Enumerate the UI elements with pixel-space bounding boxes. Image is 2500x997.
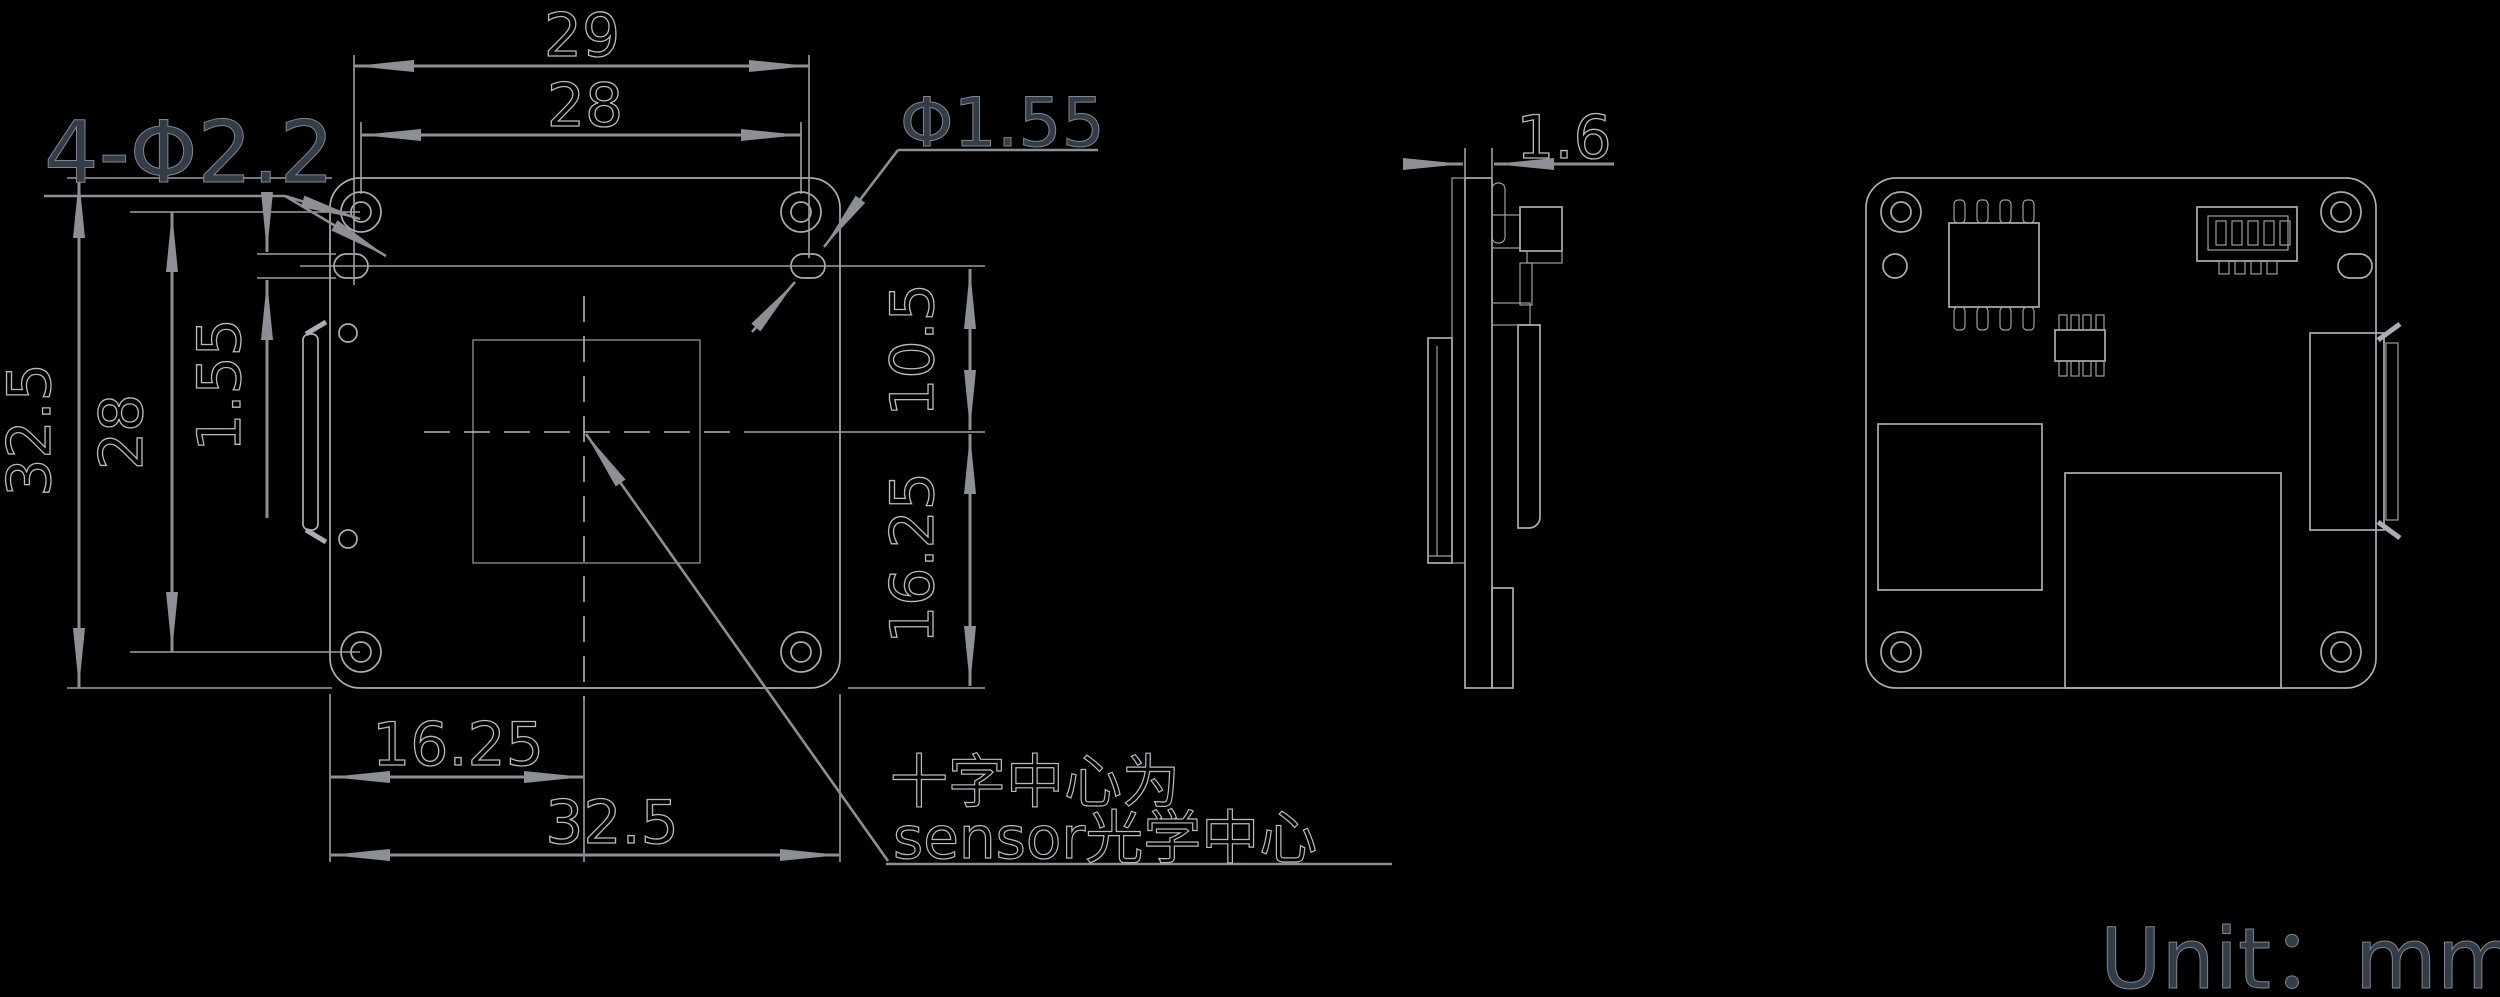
side-lens-holder bbox=[1428, 338, 1452, 563]
side-front-layer bbox=[1452, 178, 1465, 563]
back-board-outline bbox=[1866, 178, 2376, 688]
dim-label-32-5-left: 32.5 bbox=[0, 363, 65, 497]
sensor-window bbox=[473, 340, 700, 563]
dim-label-32-5-bottom: 32.5 bbox=[545, 788, 679, 858]
dim-label-29: 29 bbox=[544, 1, 620, 71]
slot-leader-1 bbox=[824, 150, 898, 247]
holes-callout-label: 4-Φ2.2 bbox=[44, 103, 334, 203]
front-via-holes bbox=[339, 324, 357, 548]
slot-leader-2 bbox=[752, 282, 795, 332]
unit-label: Unit：mm bbox=[2100, 910, 2500, 997]
front-left-connector bbox=[303, 322, 326, 542]
back-ic-small bbox=[2055, 315, 2105, 376]
back-component-rect bbox=[2065, 473, 2281, 688]
note-line2: sensor光学中心 bbox=[893, 804, 1317, 872]
dim-label-1-55: 1.55 bbox=[185, 318, 255, 452]
slot-callout-label: Φ1.55 bbox=[900, 84, 1105, 163]
thickness-dimension: 1.6 bbox=[1406, 103, 1614, 177]
dim-label-10-5: 10.5 bbox=[878, 283, 948, 417]
front-dimensions: 29 28 32.5 28 1.55 10.5 16.25 16.25 32.5… bbox=[0, 1, 1392, 872]
back-mounting-holes bbox=[1881, 192, 2372, 672]
technical-drawing: 29 28 32.5 28 1.55 10.5 16.25 16.25 32.5… bbox=[0, 0, 2500, 997]
side-view: 1.6 bbox=[1406, 103, 1614, 688]
back-top-connector bbox=[2197, 207, 2297, 274]
back-edge-connector bbox=[2310, 324, 2400, 538]
back-ic-8pin bbox=[1949, 200, 2039, 330]
dim-label-28-top: 28 bbox=[547, 71, 623, 141]
dim-label-28-left: 28 bbox=[87, 394, 157, 470]
holes-leader-2 bbox=[285, 196, 386, 256]
back-view bbox=[1866, 178, 2400, 688]
dim-label-16-25-bottom: 16.25 bbox=[372, 710, 544, 780]
dim-label-1-6: 1.6 bbox=[1516, 103, 1611, 173]
back-shield-square bbox=[1878, 424, 2042, 590]
side-back-components bbox=[1492, 183, 1562, 688]
side-pcb bbox=[1465, 178, 1492, 688]
drawing-canvas: 29 28 32.5 28 1.55 10.5 16.25 16.25 32.5… bbox=[0, 0, 2500, 997]
dim-label-16-25-right: 16.25 bbox=[878, 472, 948, 644]
front-board-outline bbox=[330, 178, 840, 688]
front-view bbox=[303, 178, 840, 700]
